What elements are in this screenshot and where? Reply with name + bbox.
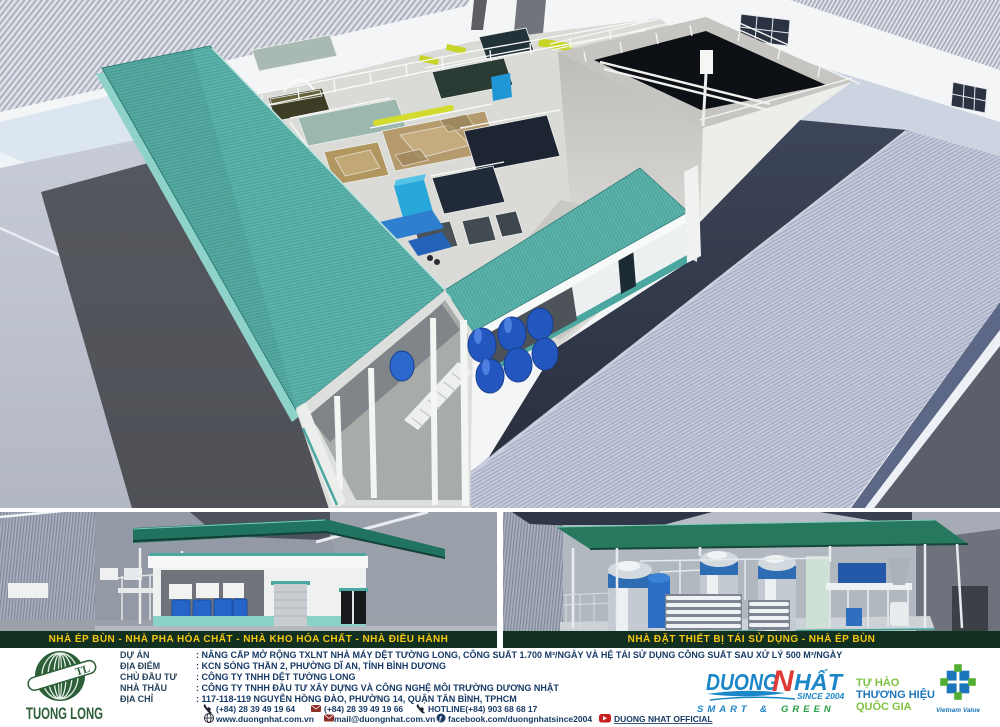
svg-text:Vietnam Value: Vietnam Value <box>936 707 980 714</box>
svg-text:GREEN: GREEN <box>781 704 835 715</box>
svg-text:TUONG LONG: TUONG LONG <box>26 705 103 723</box>
svg-text:mail@duongnhat.com.vn: mail@duongnhat.com.vn <box>334 714 435 724</box>
svg-text:(+84) 28 39 49 19 66: (+84) 28 39 49 19 66 <box>324 704 403 714</box>
svg-text:QUỐC GIA: QUỐC GIA <box>856 699 912 713</box>
svg-text:www.duongnhat.com.vn: www.duongnhat.com.vn <box>215 714 314 724</box>
svg-text:HOTLINE(+84) 903 68 68 17: HOTLINE(+84) 903 68 68 17 <box>428 704 538 714</box>
svg-text:&: & <box>760 704 767 715</box>
svg-text:DUONG NHAT OFFICIAL: DUONG NHAT OFFICIAL <box>614 714 713 724</box>
svg-text:SINCE 2004: SINCE 2004 <box>797 691 845 701</box>
svg-text:THƯƠNG HIỆU: THƯƠNG HIỆU <box>856 688 935 701</box>
svg-text:(+84) 28 39 49 19 64: (+84) 28 39 49 19 64 <box>216 704 295 714</box>
svg-text:TỰ HÀO: TỰ HÀO <box>856 676 900 689</box>
svg-text:facebook.com/duongnhatsince200: facebook.com/duongnhatsince2004 <box>448 714 592 724</box>
